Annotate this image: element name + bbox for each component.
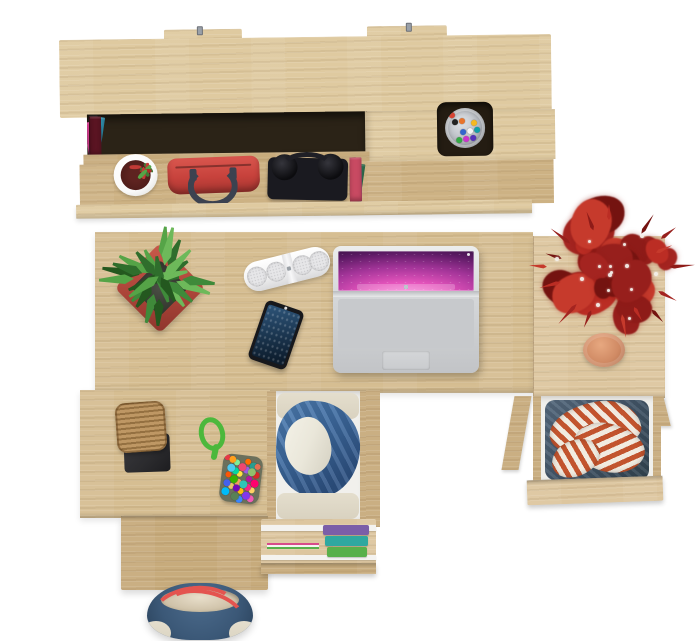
floor-items: [0, 0, 700, 641]
scene-top-view-desk-set: [0, 0, 700, 641]
